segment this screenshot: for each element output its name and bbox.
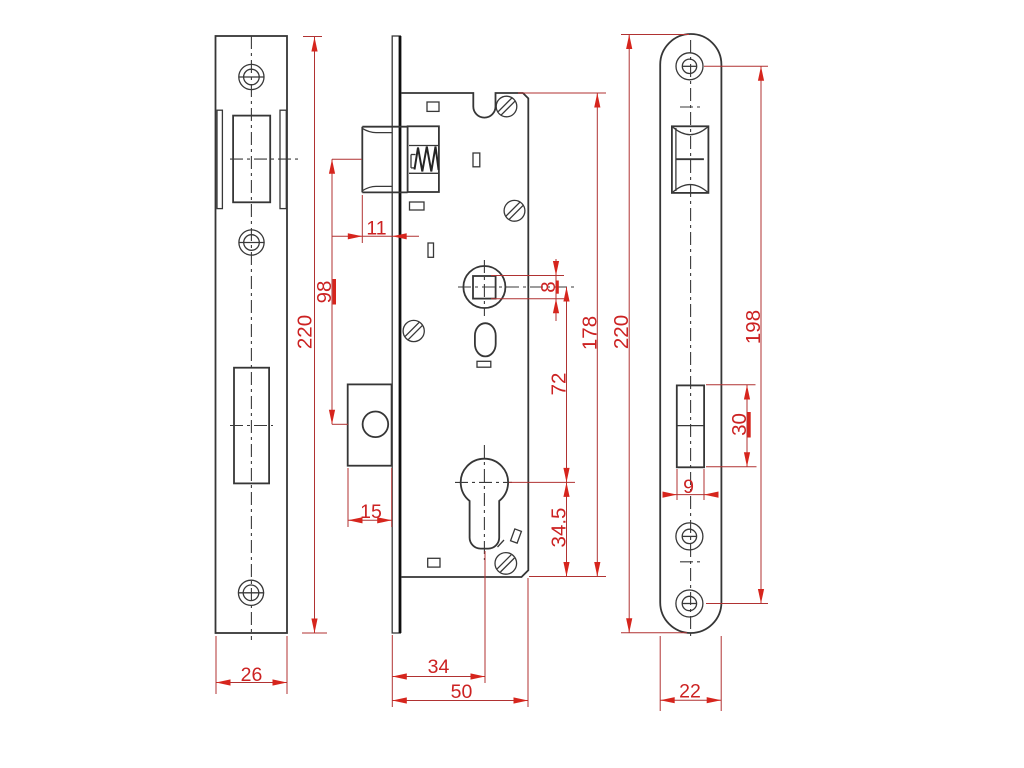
svg-text:11: 11 (366, 218, 386, 240)
svg-text:34: 34 (428, 656, 450, 678)
svg-text:220: 220 (294, 315, 317, 349)
svg-text:98: 98 (313, 281, 336, 304)
svg-text:198: 198 (742, 310, 765, 344)
svg-text:15: 15 (360, 501, 382, 523)
svg-text:72: 72 (548, 373, 571, 396)
svg-text:9: 9 (683, 476, 694, 498)
svg-text:34.5: 34.5 (548, 508, 571, 548)
svg-text:22: 22 (679, 681, 701, 703)
svg-text:50: 50 (451, 681, 473, 703)
svg-text:178: 178 (578, 316, 601, 350)
svg-text:26: 26 (241, 664, 263, 686)
svg-text:220: 220 (610, 315, 633, 349)
